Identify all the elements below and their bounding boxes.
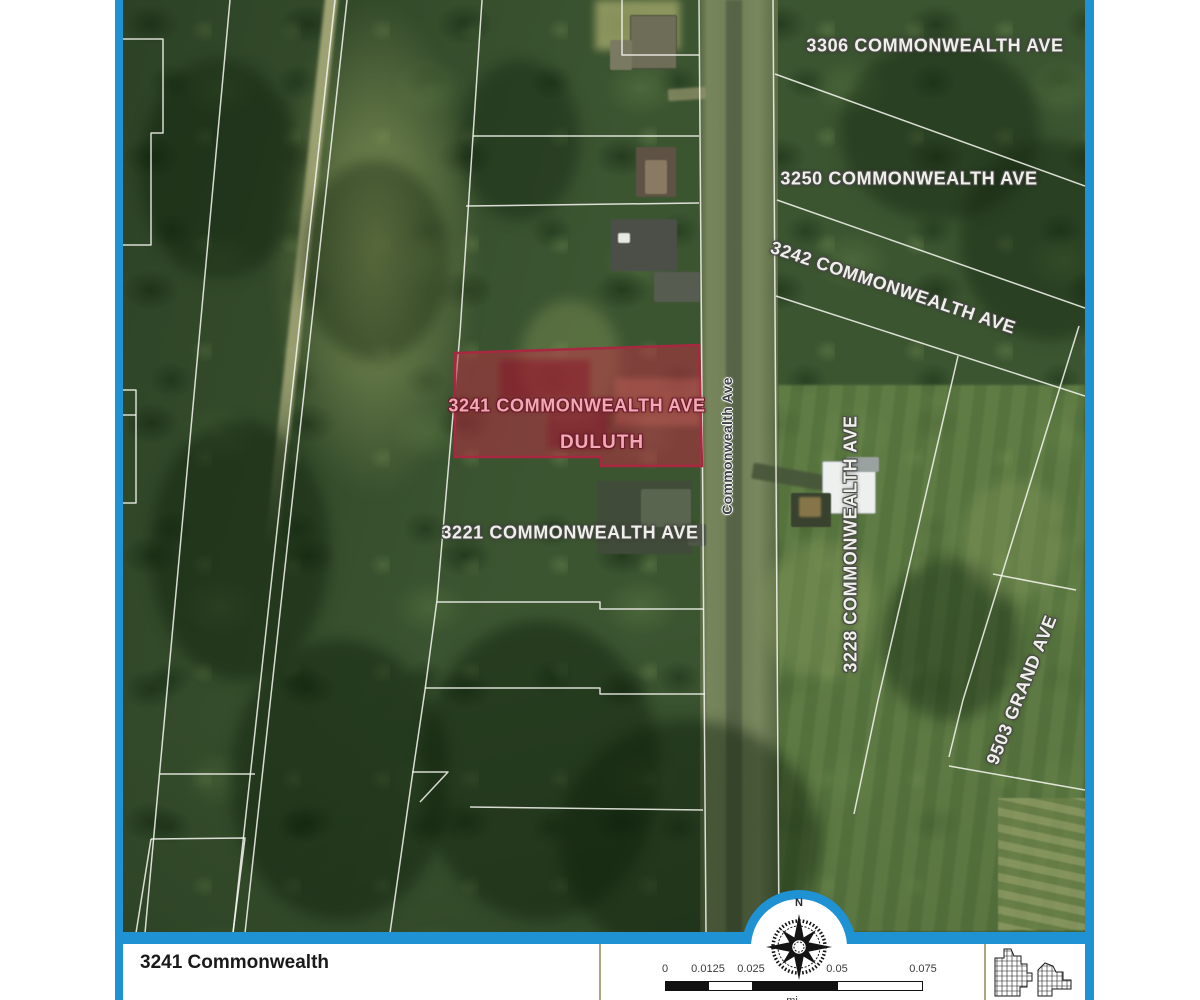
street-name-label: Commonwealth Ave xyxy=(719,377,735,515)
parcel-address-label: 3228 COMMONWEALTH AVE xyxy=(841,415,862,672)
parcel-map-document: 3306 COMMONWEALTH AVE 3250 COMMONWEALTH … xyxy=(0,0,1200,1000)
scale-tick-label: 0.075 xyxy=(909,963,937,975)
highlighted-parcel-address-label: 3241 COMMONWEALTH AVE xyxy=(448,396,705,417)
footer-divider xyxy=(599,944,601,1000)
map-frame-right-border xyxy=(1085,0,1094,1000)
scale-unit-label: mi xyxy=(786,995,798,1000)
parcel-boundary-lines xyxy=(123,0,1085,932)
parcel-address-label: 3306 COMMONWEALTH AVE xyxy=(806,36,1063,57)
map-title: 3241 Commonwealth xyxy=(140,952,329,974)
parcel-address-label: 3221 COMMONWEALTH AVE xyxy=(441,523,698,544)
aerial-map: 3306 COMMONWEALTH AVE 3250 COMMONWEALTH … xyxy=(123,0,1085,932)
footer-divider xyxy=(984,944,986,1000)
map-frame-left-border xyxy=(115,0,123,1000)
footer-panel: 3241 Commonwealth 0 0.0125 0.025 0.05 0.… xyxy=(123,944,1085,1000)
inset-locator-map xyxy=(992,946,1078,1000)
map-frame-bottom-stripe xyxy=(123,932,1085,944)
scale-tick-label: 0 xyxy=(662,963,668,975)
scale-tick-label: 0.0125 xyxy=(691,963,725,975)
parcel-address-label: 3250 COMMONWEALTH AVE xyxy=(780,169,1037,190)
compass-rose-icon xyxy=(754,902,844,992)
highlighted-parcel-city-label: DULUTH xyxy=(560,432,644,454)
